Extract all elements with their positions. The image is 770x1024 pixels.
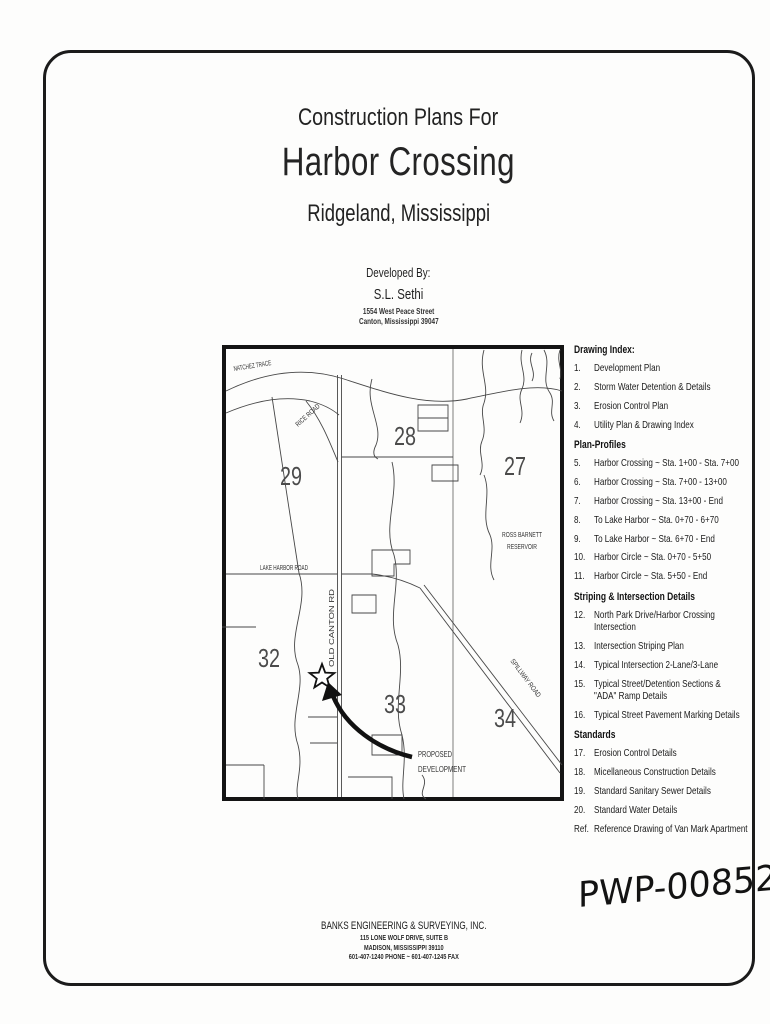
drawing-index-entry-label: Harbor Crossing ~ Sta. 7+00 - 13+00: [594, 476, 756, 488]
developer-address-line1: 1554 West Peace Street: [43, 307, 754, 316]
drawing-index-entry-number: 20.: [574, 804, 594, 816]
label-section-29: 29: [280, 461, 302, 491]
drawing-index-entry-number: 5.: [574, 457, 594, 469]
drawing-index-entry-label: Storm Water Detention & Details: [594, 381, 756, 393]
drawing-index-entry-label: Typical Street/Detention Sections &"ADA"…: [594, 678, 756, 703]
page-location: Ridgeland, Mississippi: [43, 200, 754, 228]
drawing-index-entry-label: To Lake Harbor ~ Sta. 0+70 - 6+70: [594, 514, 756, 526]
drawing-index-section-heading: Striping & Intersection Details: [574, 591, 756, 603]
label-reservoir: RESERVOIR: [507, 544, 537, 551]
drawing-index-entry: 10.Harbor Circle ~ Sta. 0+70 - 5+50: [574, 551, 756, 563]
drawing-index-entry-number: 13.: [574, 640, 594, 652]
drawing-index-entry: 8.To Lake Harbor ~ Sta. 0+70 - 6+70: [574, 514, 756, 526]
page-title: Harbor Crossing: [43, 140, 754, 185]
label-section-28: 28: [394, 421, 416, 451]
drawing-index-entry: 11.Harbor Circle ~ Sta. 5+50 - End: [574, 570, 756, 582]
engineer-address-line2: MADISON, MISSISSIPPI 39110: [43, 945, 765, 952]
drawing-index-entry: 1.Development Plan: [574, 362, 756, 374]
drawing-index-entry-label: Typical Intersection 2-Lane/3-Lane: [594, 659, 756, 671]
drawing-index-entry-label: Erosion Control Details: [594, 747, 756, 759]
drawing-index-entry: 17.Erosion Control Details: [574, 747, 756, 759]
drawing-index-entry-number: 8.: [574, 514, 594, 526]
drawing-index-entry: 9.To Lake Harbor ~ Sta. 6+70 - End: [574, 533, 756, 545]
developed-by-heading: Developed By:: [43, 265, 754, 280]
drawing-index-entry-label: Harbor Circle ~ Sta. 0+70 - 5+50: [594, 551, 756, 563]
engineer-company: BANKS ENGINEERING & SURVEYING, INC.: [43, 921, 765, 932]
drawing-index-entry-label: To Lake Harbor ~ Sta. 6+70 - End: [594, 533, 756, 545]
label-natchez-trace: NATCHEZ TRACE: [233, 360, 272, 373]
drawing-index-entry: 18.Micellaneous Construction Details: [574, 766, 756, 778]
drawing-index-entry: 12.North Park Drive/Harbor Crossing Inte…: [574, 609, 756, 634]
page-title-text: Harbor Crossing: [282, 140, 515, 185]
drawing-index: Drawing Index:1.Development Plan2.Storm …: [574, 344, 756, 842]
drawing-index-section-heading: Drawing Index:: [574, 344, 756, 356]
drawing-index-entry-number: 18.: [574, 766, 594, 778]
drawing-index-entry-label: Micellaneous Construction Details: [594, 766, 756, 778]
drawing-index-entry-number: 7.: [574, 495, 594, 507]
label-proposed: PROPOSED: [418, 750, 452, 759]
drawing-index-entry: 2.Storm Water Detention & Details: [574, 381, 756, 393]
drawing-index-entry-number: 9.: [574, 533, 594, 545]
engineer-company-text: BANKS ENGINEERING & SURVEYING, INC.: [321, 921, 486, 932]
drawing-index-entry-number: 19.: [574, 785, 594, 797]
vicinity-map: NATCHEZ TRACE RICE ROAD 29 28 27 ROSS BA…: [222, 345, 564, 801]
drawing-index-entry: 6.Harbor Crossing ~ Sta. 7+00 - 13+00: [574, 476, 756, 488]
drawing-index-section-heading: Plan-Profiles: [574, 439, 756, 451]
developer-address1-text: 1554 West Peace Street: [363, 307, 434, 316]
engineer-phone-text: 601-407-1240 PHONE ~ 601-407-1245 FAX: [349, 954, 459, 961]
drawing-index-entry-number: 14.: [574, 659, 594, 671]
drawing-index-section-heading: Standards: [574, 729, 756, 741]
developed-by-heading-text: Developed By:: [366, 265, 430, 280]
label-development: DEVELOPMENT: [418, 765, 466, 774]
label-section-33: 33: [384, 689, 406, 719]
drawing-index-entry-label: Standard Sanitary Sewer Details: [594, 785, 756, 797]
developer-address-line2: Canton, Mississippi 39047: [43, 317, 754, 326]
label-section-34: 34: [494, 703, 516, 733]
drawing-index-entry: 3.Erosion Control Plan: [574, 400, 756, 412]
drawing-index-entry-number: 16.: [574, 709, 594, 721]
drawing-index-entry: 19.Standard Sanitary Sewer Details: [574, 785, 756, 797]
drawing-index-entry-label: Typical Street Pavement Marking Details: [594, 709, 756, 721]
label-section-27: 27: [504, 451, 526, 481]
drawing-index-entry: 20.Standard Water Details: [574, 804, 756, 816]
page-subtitle-text: Construction Plans For: [298, 104, 498, 132]
drawing-index-entry: 16.Typical Street Pavement Marking Detai…: [574, 709, 756, 721]
drawing-index-entry-label: Harbor Crossing ~ Sta. 13+00 - End: [594, 495, 756, 507]
drawing-index-entry-number: 4.: [574, 419, 594, 431]
page-subtitle: Construction Plans For: [43, 104, 754, 132]
drawing-index-entry-number: 3.: [574, 400, 594, 412]
drawing-index-entry: 15.Typical Street/Detention Sections &"A…: [574, 678, 756, 703]
drawing-index-entry-label: Erosion Control Plan: [594, 400, 756, 412]
label-spillway-road: SPILLWAY ROAD: [508, 658, 541, 699]
drawing-index-entry: Ref.Reference Drawing of Van Mark Apartm…: [574, 823, 756, 835]
drawing-index-list: Drawing Index:1.Development Plan2.Storm …: [574, 344, 756, 835]
drawing-index-entry-number: 17.: [574, 747, 594, 759]
drawing-index-entry-number: 12.: [574, 609, 594, 634]
label-rice-road: RICE ROAD: [295, 403, 322, 428]
drawing-index-entry-number: 10.: [574, 551, 594, 563]
drawing-index-entry-label: Intersection Striping Plan: [594, 640, 756, 652]
drawing-index-entry-label: Reference Drawing of Van Mark Apartment: [594, 823, 756, 835]
developer-name: S.L. Sethi: [43, 286, 754, 303]
drawing-index-entry: 5.Harbor Crossing ~ Sta. 1+00 - Sta. 7+0…: [574, 457, 756, 469]
drawing-index-entry: 14.Typical Intersection 2-Lane/3-Lane: [574, 659, 756, 671]
drawing-index-entry-number: 15.: [574, 678, 594, 703]
label-section-32: 32: [258, 643, 280, 673]
drawing-index-entry-label: North Park Drive/Harbor Crossing Interse…: [594, 609, 756, 634]
drawing-index-entry: 7.Harbor Crossing ~ Sta. 13+00 - End: [574, 495, 756, 507]
label-ross-barnett: ROSS BARNETT: [502, 532, 543, 539]
label-lake-harbor-road: LAKE HARBOR ROAD: [260, 565, 308, 572]
engineer-address2-text: MADISON, MISSISSIPPI 39110: [364, 945, 444, 952]
developer-name-text: S.L. Sethi: [374, 286, 423, 303]
page-location-text: Ridgeland, Mississippi: [307, 200, 490, 228]
drawing-index-entry-number: 2.: [574, 381, 594, 393]
drawing-index-entry-number: 1.: [574, 362, 594, 374]
drawing-index-entry-label: Harbor Circle ~ Sta. 5+50 - End: [594, 570, 756, 582]
drawing-index-entry: 4.Utility Plan & Drawing Index: [574, 419, 756, 431]
drawing-index-entry-label: Harbor Crossing ~ Sta. 1+00 - Sta. 7+00: [594, 457, 756, 469]
engineer-phone: 601-407-1240 PHONE ~ 601-407-1245 FAX: [43, 954, 765, 961]
label-old-canton-rd: OLD CANTON RD: [329, 589, 336, 667]
engineer-block: BANKS ENGINEERING & SURVEYING, INC. 115 …: [43, 921, 765, 964]
drawing-index-entry-label: Development Plan: [594, 362, 756, 374]
drawing-index-entry-label: Standard Water Details: [594, 804, 756, 816]
drawing-index-entry-label: Utility Plan & Drawing Index: [594, 419, 756, 431]
drawing-index-entry-number: 11.: [574, 570, 594, 582]
vicinity-map-svg: NATCHEZ TRACE RICE ROAD 29 28 27 ROSS BA…: [222, 345, 564, 801]
drawing-index-entry: 13.Intersection Striping Plan: [574, 640, 756, 652]
drawing-index-entry-number: Ref.: [574, 823, 594, 835]
developer-address2-text: Canton, Mississippi 39047: [359, 317, 439, 326]
engineer-address-line1: 115 LONE WOLF DRIVE, SUITE B: [43, 935, 765, 942]
drawing-index-entry-number: 6.: [574, 476, 594, 488]
engineer-address1-text: 115 LONE WOLF DRIVE, SUITE B: [360, 935, 448, 942]
